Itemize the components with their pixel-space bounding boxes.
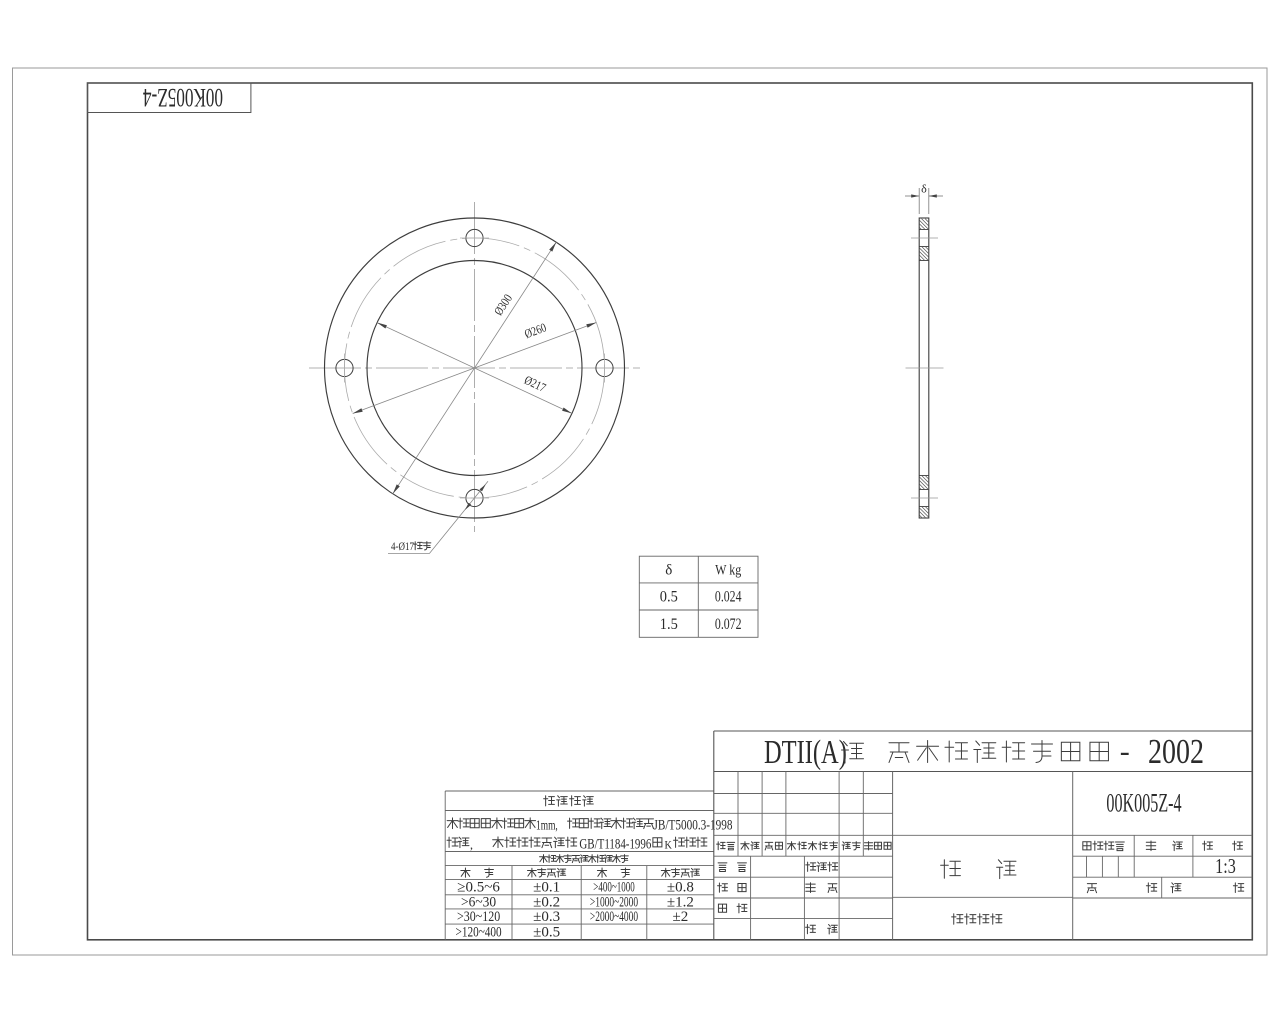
svg-text:2002: 2002 [1148,732,1204,771]
svg-text:,: , [470,837,473,851]
svg-text:1mm,: 1mm, [536,818,558,833]
svg-text:00K005Z-4: 00K005Z-4 [1106,789,1181,818]
svg-text:1.5: 1.5 [660,615,678,633]
svg-text:DTII(A): DTII(A) [764,734,847,771]
svg-text:±0.5: ±0.5 [533,924,560,940]
svg-text:>2000~4000: >2000~4000 [590,908,638,925]
svg-text:δ: δ [665,563,672,579]
svg-text:W kg: W kg [715,561,741,578]
svg-text:4-Ø17: 4-Ø17 [391,541,414,553]
svg-text:-: - [1120,735,1130,768]
svg-text:0.024: 0.024 [715,588,742,606]
svg-text:JB/T5000.3-1998: JB/T5000.3-1998 [654,816,733,833]
svg-text:±1.2: ±1.2 [667,894,694,910]
svg-text:00K005Z-4: 00K005Z-4 [143,83,223,113]
svg-text:>120~400: >120~400 [456,923,502,940]
svg-text:δ: δ [921,182,927,196]
svg-text:GB/T1184-1996: GB/T1184-1996 [579,835,651,852]
svg-text:K: K [665,839,672,852]
svg-text:1:3: 1:3 [1215,855,1236,879]
svg-text:0.072: 0.072 [715,615,742,633]
svg-text:±0.8: ±0.8 [667,880,694,896]
svg-text:±2: ±2 [673,909,689,925]
svg-text:±0.1: ±0.1 [533,880,560,896]
svg-text:±0.2: ±0.2 [533,894,560,910]
svg-text:±0.3: ±0.3 [533,909,560,925]
svg-text:0.5: 0.5 [660,588,678,606]
